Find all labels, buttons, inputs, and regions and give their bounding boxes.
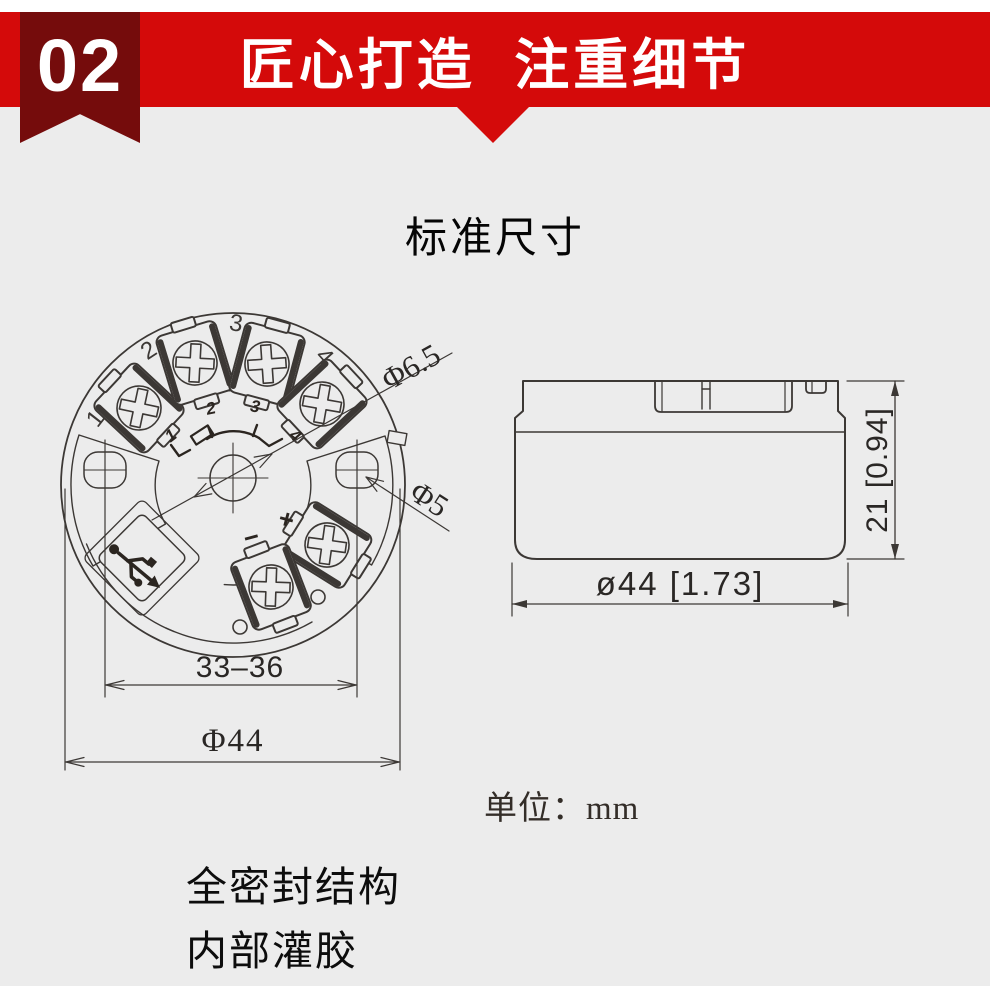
- dim-outer-diameter-label: Φ44: [201, 723, 264, 759]
- wiring-diagram-bracket: [171, 425, 282, 456]
- snap-clip-profile: [806, 381, 826, 393]
- terminal-number-3: 3: [228, 309, 245, 338]
- dim-height-label: 21 [0.94]: [861, 407, 894, 533]
- dim-width-label: ø44 [1.73]: [596, 565, 765, 602]
- dim-center-hole-label: Φ6.5: [375, 337, 446, 397]
- top-view-drawing: 1 2 3 4 1 2 3 4 + −: [61, 309, 455, 770]
- center-hole: [198, 443, 268, 513]
- terminal-recess-profile: [655, 381, 792, 412]
- feature-potted-interior: 内部灌胶: [186, 917, 358, 977]
- feature-sealed-structure: 全密封结构: [186, 853, 401, 913]
- locator-hole-right: [311, 590, 325, 604]
- locator-hole-bottom: [233, 620, 247, 634]
- dim-side-hole-label: Φ5: [404, 474, 455, 524]
- side-view-drawing: 21 [0.94] ø44 [1.73]: [512, 381, 904, 616]
- product-detail-page: 匠心打造 注重细节 02 标准尺寸: [0, 0, 990, 986]
- rim-key-notch: [387, 431, 407, 446]
- dim-mount-span-label: 33–36: [196, 651, 284, 684]
- polarity-minus: −: [240, 521, 262, 554]
- housing-outline: [515, 381, 845, 559]
- unit-note: 单位：mm: [484, 781, 639, 829]
- technical-drawing-canvas: 1 2 3 4 1 2 3 4 + −: [0, 0, 990, 986]
